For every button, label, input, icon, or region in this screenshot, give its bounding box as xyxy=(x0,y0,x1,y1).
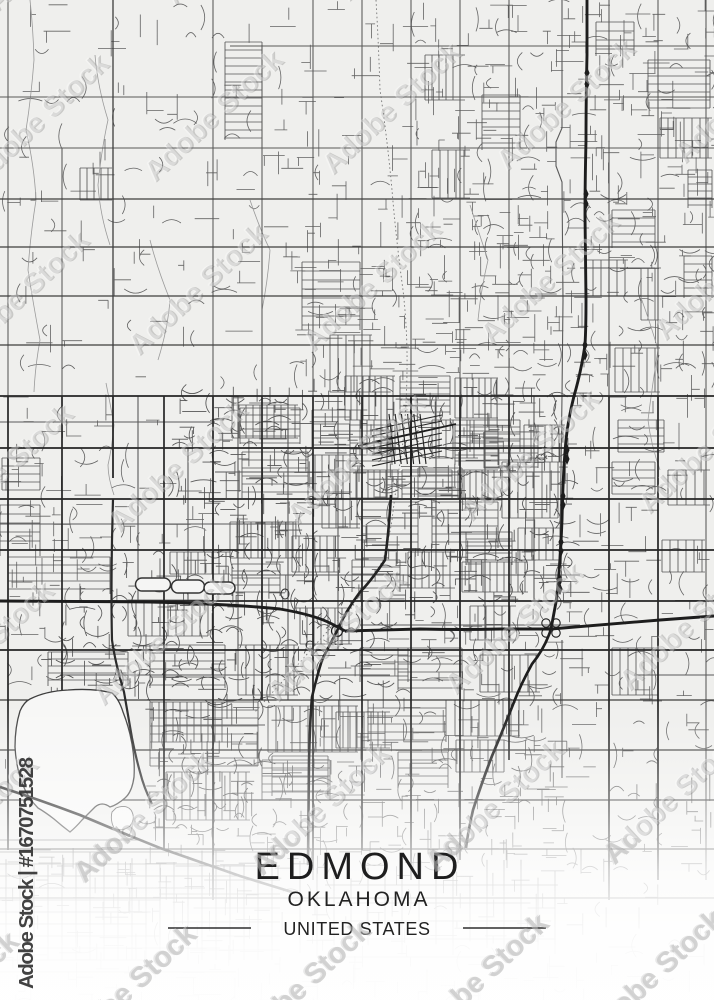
svg-text:Adobe Stock | #1670751528: Adobe Stock | #1670751528 xyxy=(15,757,38,989)
svg-text:OKLAHOMA: OKLAHOMA xyxy=(287,888,430,911)
